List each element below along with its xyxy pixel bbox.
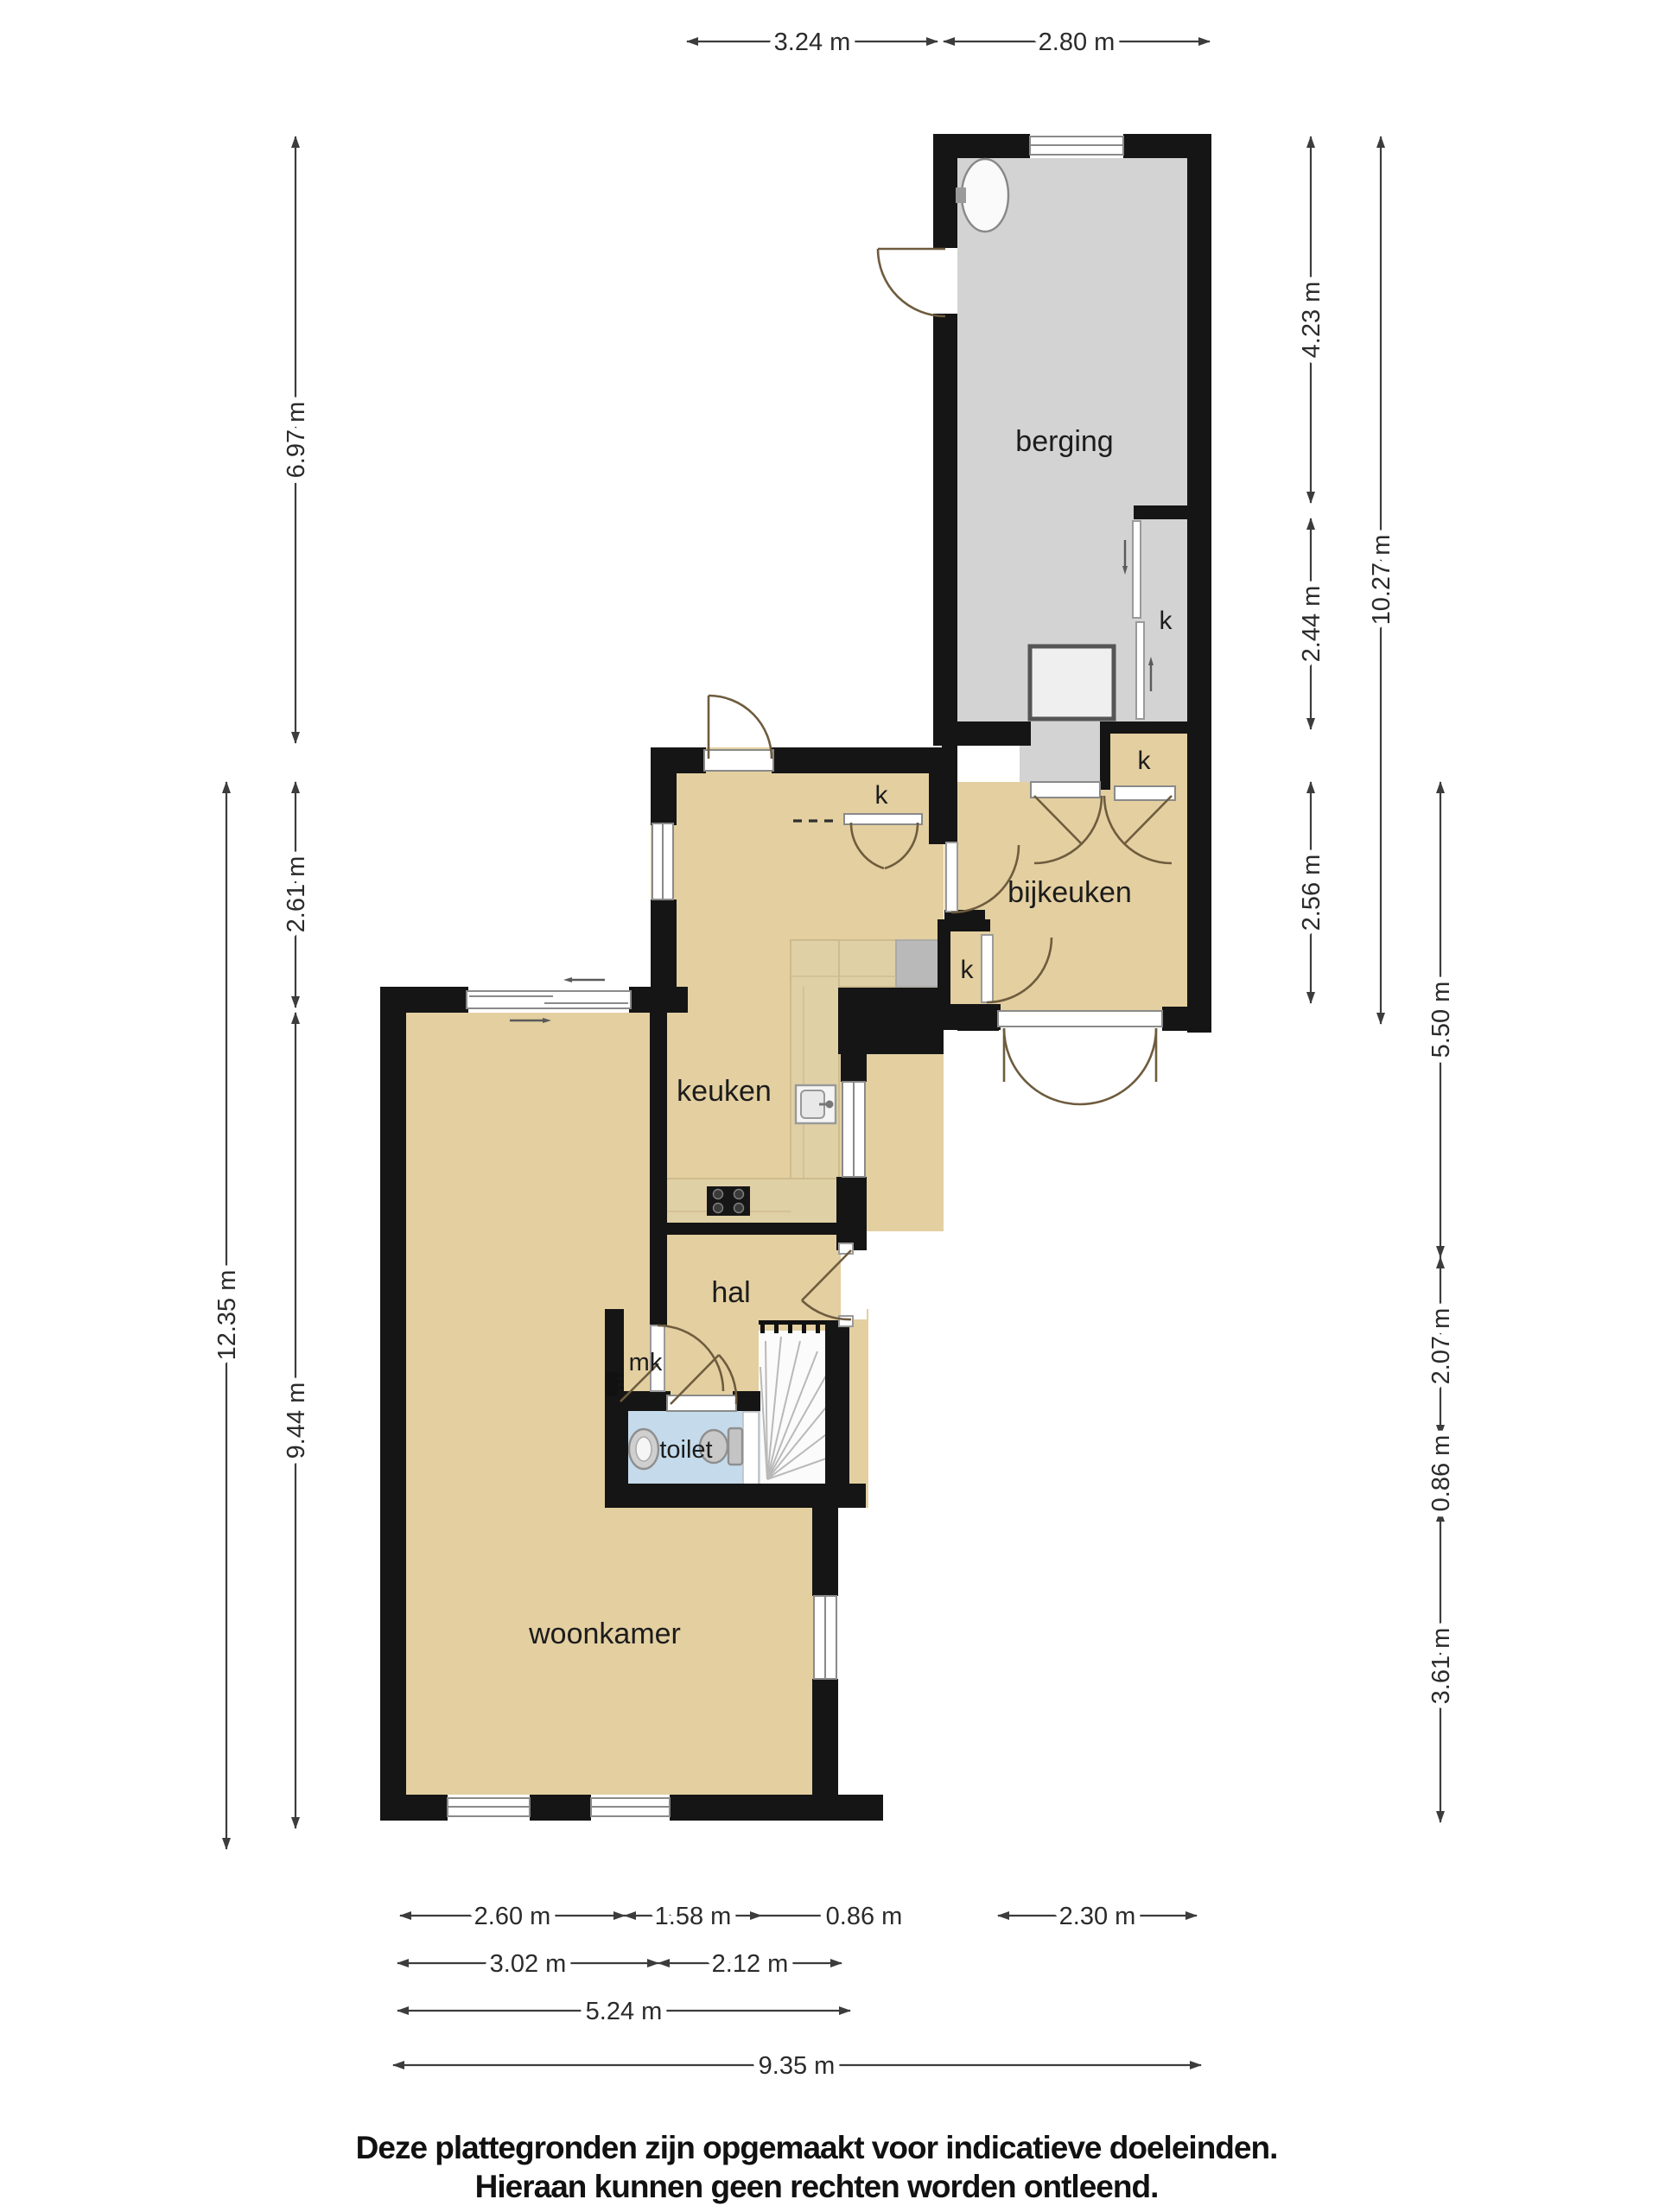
dim-label-right-6: 0.86 m [1427,1435,1455,1512]
dim-label-bottom-4: 9.35 m [759,2052,836,2080]
dim-label-bottom-1c: 0.86 m [826,1903,903,1930]
door-french-bijkeuken [1004,1028,1156,1104]
dim-label-bottom-3: 5.24 m [586,1998,663,2025]
cooktop-fixture [707,1186,750,1216]
room-label-woonkamer: woonkamer [528,1618,681,1650]
closet-label-berging: k [1160,607,1173,635]
dim-label-bottom-2a: 3.02 m [490,1950,567,1978]
room-label-bijkeuken: bijkeuken [1007,876,1132,909]
dim-label-right-5: 2.07 m [1427,1308,1455,1385]
room-label-hal: hal [711,1276,750,1309]
threshold-closet-bijkeuken [1115,786,1175,800]
threshold-berging-bijkeuken [1031,782,1100,798]
dim-label-right-2: 2.44 m [1298,586,1325,663]
threshold-french-doors [998,1011,1162,1027]
dim-label-left-total: 12.35 m [213,1270,241,1361]
dim-label-right-7: 3.61 m [1427,1628,1455,1705]
threshold-closet-keuken [844,814,922,824]
dim-label-left-2: 2.61 m [283,856,310,933]
dim-label-right-3: 2.56 m [1298,855,1325,931]
closet-label-bijkeuken-top: k [1138,747,1152,775]
dim-label-top-1: 3.24 m [774,29,851,56]
room-label-toilet: toilet [659,1436,712,1464]
room-label-meterkast: mk [629,1349,663,1376]
dim-label-bottom-1b: 1.58 m [655,1903,732,1930]
closet-label-bijkeuken-bottom: k [961,956,975,984]
window-hal-right [842,1082,865,1177]
kitchen-sink-fixture [796,1085,836,1123]
window-woonkamer-bottom-right [591,1798,670,1816]
room-label-keuken: keuken [677,1075,772,1108]
window-woonkamer-bottom-left [448,1798,530,1816]
disclaimer-line-2: Hieraan kunnen geen rechten worden ontle… [475,2169,1159,2204]
threshold-keuken-backdoor [704,750,773,771]
toilet-door-panel [743,1412,759,1484]
room-label-berging: berging [1015,425,1113,458]
dim-label-bottom-2b: 2.12 m [712,1950,789,1978]
counter-gray-section [896,940,944,987]
door-berging-exterior [878,248,957,316]
closet-label-keuken: k [875,781,889,810]
dim-label-right-1: 4.23 m [1298,282,1325,359]
berging-passage-floor [1020,721,1100,785]
dim-label-bottom-1a: 2.60 m [474,1903,551,1930]
window-woonkamer-right [814,1596,836,1679]
dim-label-bottom-1d: 2.30 m [1059,1903,1136,1930]
dim-label-left-1: 6.97 m [283,402,310,479]
washer-fixture [1030,646,1114,719]
window-berging-top [1030,137,1123,155]
window-keuken-left [652,823,673,899]
dim-label-top-2: 2.80 m [1039,29,1116,56]
disclaimer: Deze plattegronden zijn opgemaakt voor i… [356,2130,1278,2204]
dim-label-right-total: 10.27 m [1368,535,1395,626]
dim-label-right-4: 5.50 m [1427,982,1455,1058]
disclaimer-line-1: Deze plattegronden zijn opgemaakt voor i… [356,2130,1278,2165]
floor-plan-canvas: berging bijkeuken keuken hal woonkamer t… [0,0,1659,2212]
floor-plan-page: berging bijkeuken keuken hal woonkamer t… [0,0,1659,2212]
dim-label-left-3: 9.44 m [283,1382,310,1459]
